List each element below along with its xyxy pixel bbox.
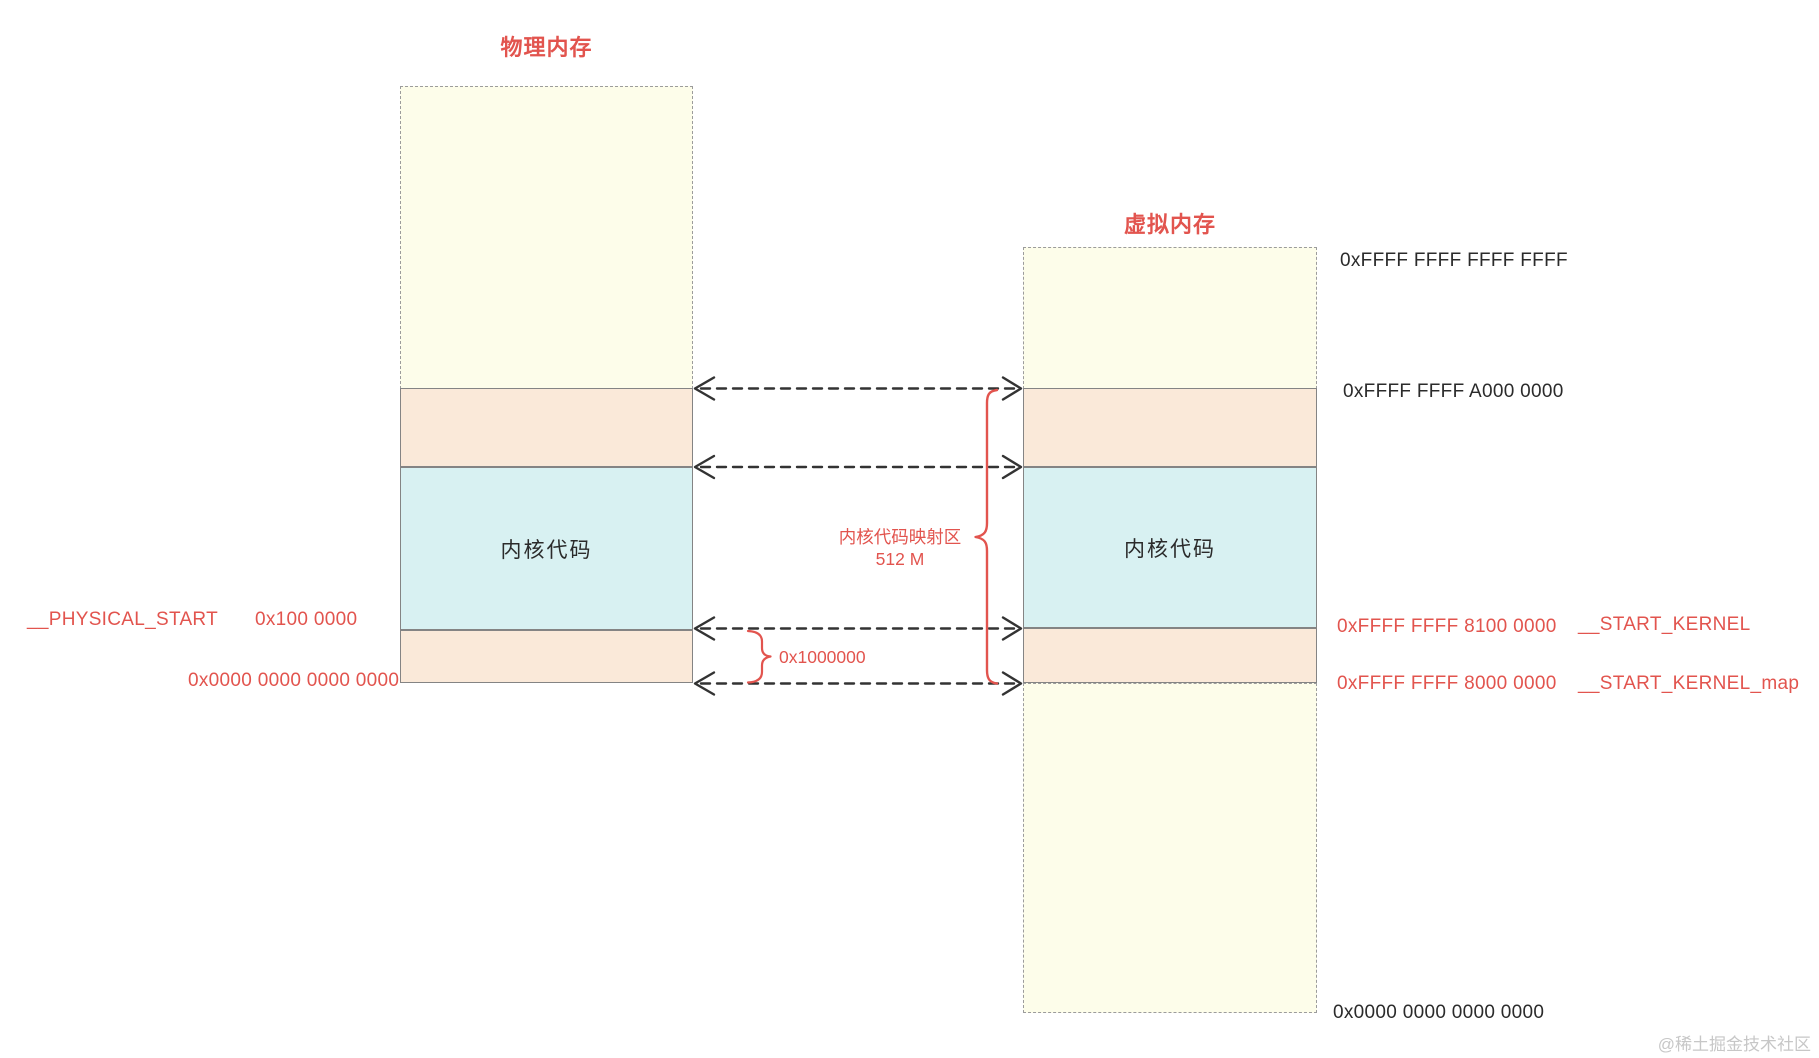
diagram-canvas: 物理内存 内核代码 虚拟内存 内核代码 __PHYSICAL_START 0x1… bbox=[0, 0, 1819, 1058]
virtual-address-8000-label: 0xFFFF FFFF 8000 0000 bbox=[1337, 673, 1557, 695]
virtual-kernel-code-region: 内核代码 bbox=[1023, 467, 1317, 628]
offset-annotation: 0x1000000 bbox=[779, 646, 866, 668]
start-kernel-symbol-label: __START_KERNEL bbox=[1578, 614, 1750, 636]
kernel-map-region-annotation: 内核代码映射区 512 M bbox=[790, 526, 1010, 570]
virtual-memory-title: 虚拟内存 bbox=[1023, 207, 1317, 239]
virtual-map-base-region bbox=[1023, 628, 1317, 683]
physical-start-symbol-label: __PHYSICAL_START bbox=[27, 609, 218, 631]
physical-start-address-label: 0x100 0000 bbox=[255, 609, 357, 631]
virtual-reserved-region bbox=[1023, 388, 1317, 467]
watermark: @稀土掘金技术社区 bbox=[1658, 1030, 1811, 1055]
physical-kernel-code-region: 内核代码 bbox=[400, 467, 693, 630]
physical-upper-region bbox=[400, 86, 693, 389]
mapping-arrow-kernel-top bbox=[695, 456, 1021, 478]
virtual-address-bottom-label: 0x0000 0000 0000 0000 bbox=[1333, 1002, 1544, 1024]
physical-base-address-label: 0x0000 0000 0000 0000 bbox=[188, 670, 399, 692]
virtual-address-top-label: 0xFFFF FFFF FFFF FFFF bbox=[1340, 250, 1568, 272]
virtual-kernel-code-label: 内核代码 bbox=[1024, 468, 1316, 627]
physical-kernel-code-label: 内核代码 bbox=[401, 468, 692, 629]
mapping-arrow-top bbox=[695, 378, 1021, 400]
start-kernel-map-symbol-label: __START_KERNEL_map bbox=[1578, 673, 1799, 695]
physical-memory-title: 物理内存 bbox=[400, 30, 693, 62]
virtual-address-a000-label: 0xFFFF FFFF A000 0000 bbox=[1343, 381, 1564, 403]
virtual-address-8100-label: 0xFFFF FFFF 8100 0000 bbox=[1337, 616, 1557, 638]
kernel-map-region-name: 内核代码映射区 bbox=[790, 526, 1010, 548]
mapping-arrow-kernel-bottom bbox=[695, 618, 1021, 640]
offset-brace bbox=[748, 631, 771, 683]
kernel-map-region-size: 512 M bbox=[790, 548, 1010, 570]
physical-reserved-region bbox=[400, 388, 693, 467]
physical-lower-region bbox=[400, 630, 693, 683]
virtual-upper-region bbox=[1023, 247, 1317, 389]
virtual-lower-region bbox=[1023, 683, 1317, 1013]
mapping-arrow-bottom bbox=[695, 673, 1021, 695]
